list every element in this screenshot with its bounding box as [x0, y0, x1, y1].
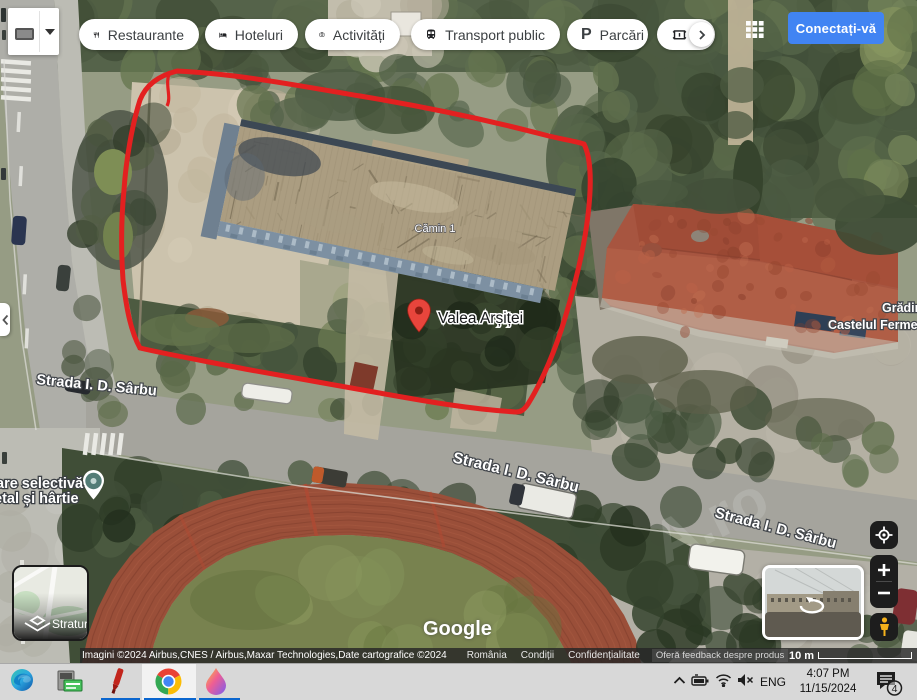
svg-text:etal și hârtie: etal și hârtie	[0, 491, 79, 507]
svg-text:Castelul Fermeca: Castelul Fermeca	[828, 318, 917, 332]
svg-text:Valea Arșiței: Valea Arșiței	[438, 310, 523, 327]
svg-text:are selectivă: are selectivă	[0, 476, 84, 492]
svg-text:Cămin 1: Cămin 1	[415, 223, 456, 235]
svg-text:Straturi: Straturi	[52, 617, 87, 631]
svg-text:4: 4	[892, 683, 898, 695]
svg-text:Grădin: Grădin	[882, 301, 917, 315]
